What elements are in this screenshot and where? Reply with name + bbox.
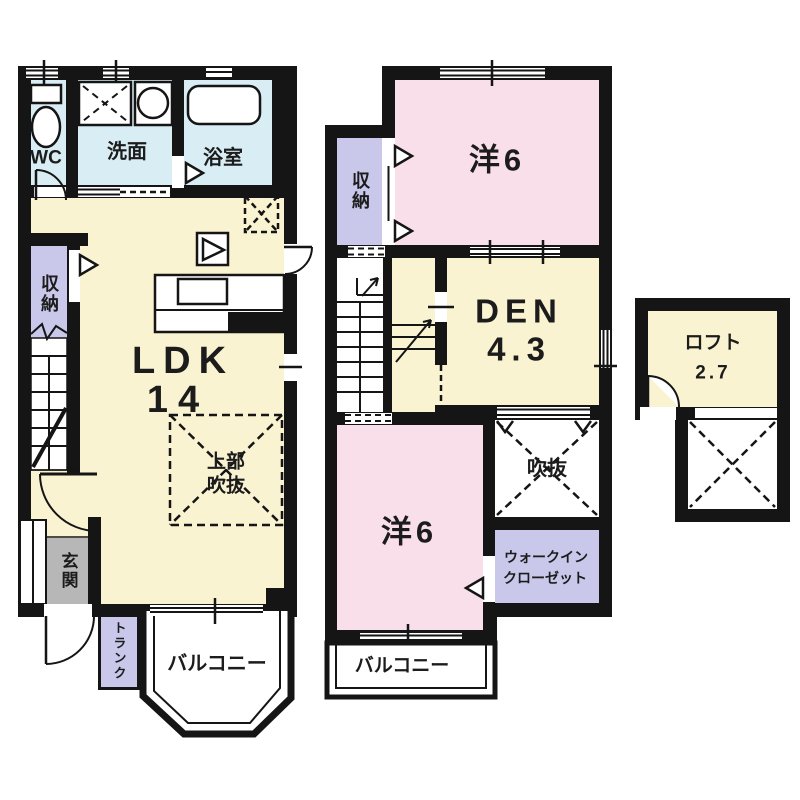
ldk-right-window	[279, 354, 302, 381]
sink-icon	[135, 82, 172, 125]
label-den: DEN	[475, 295, 563, 328]
window-bath-top	[206, 68, 232, 77]
label-storage-2f: 収納	[351, 171, 369, 211]
label-loft-size: 2.7	[695, 364, 730, 383]
label-loft: ロフト	[684, 334, 741, 353]
label-den-size: 4.3	[487, 333, 551, 366]
kitchen-counter-icon	[155, 275, 284, 332]
window-den-right	[594, 330, 617, 368]
hall-steps	[392, 320, 435, 362]
floor-plan: WC 洗面 浴室 収納 LDK 14 上部 吹抜 玄関 トランク バルコニー 収…	[0, 0, 800, 800]
stairs-2f-opening	[348, 246, 385, 257]
label-void-upper-1: 上部	[207, 453, 245, 472]
hall-den-opening	[428, 292, 454, 322]
ldk-side-door-arc	[284, 244, 312, 274]
window-western-den	[470, 240, 560, 264]
storage-1f-door	[69, 250, 97, 302]
loft-void-dashed	[690, 422, 775, 507]
label-balcony-1f: バルコニー	[167, 654, 267, 674]
label-western-top: 洋6	[469, 145, 525, 176]
label-ldk-size: 14	[147, 381, 209, 419]
wc-door-arc	[34, 170, 66, 200]
label-washroom: 洗面	[107, 142, 147, 162]
window-wc-top	[26, 60, 58, 85]
label-wc: WC	[30, 149, 62, 168]
label-trunk: トランク	[113, 621, 126, 681]
washer-icon	[79, 82, 131, 125]
loft-door-arc	[640, 376, 679, 420]
storage-2f-doors	[389, 146, 413, 241]
toilet-icon	[31, 85, 61, 147]
bathtub-icon	[188, 86, 260, 124]
label-balcony-2f: バルコニー	[355, 657, 450, 676]
refrigerator-icon	[197, 233, 228, 265]
label-bathroom: 浴室	[203, 148, 243, 168]
label-wic-1: ウォークイン	[504, 550, 588, 564]
label-storage-1f: 収納	[40, 274, 58, 314]
bathroom-door	[172, 156, 203, 188]
label-void-upper-2: 吹抜	[207, 477, 245, 496]
front-door-arc	[44, 604, 94, 664]
stairs-2f-lines	[337, 278, 383, 412]
label-ldk: LDK	[132, 342, 234, 380]
den-void-opening	[497, 407, 591, 432]
kitchen-hatch	[245, 196, 278, 232]
label-void-2f: 吹抜	[527, 459, 567, 479]
wic-door	[466, 556, 495, 602]
label-entrance: 玄関	[60, 552, 77, 590]
loft-void-opening	[695, 408, 777, 420]
stairs-1f-lines	[31, 324, 67, 470]
washroom-bottom-opening	[78, 187, 170, 197]
shoe-cabinet	[20, 520, 88, 604]
western-bottom-top-opening	[345, 413, 392, 424]
label-western-bottom: 洋6	[381, 517, 437, 548]
window-western-top	[440, 60, 545, 86]
label-wic-2: クローゼット	[503, 571, 587, 585]
